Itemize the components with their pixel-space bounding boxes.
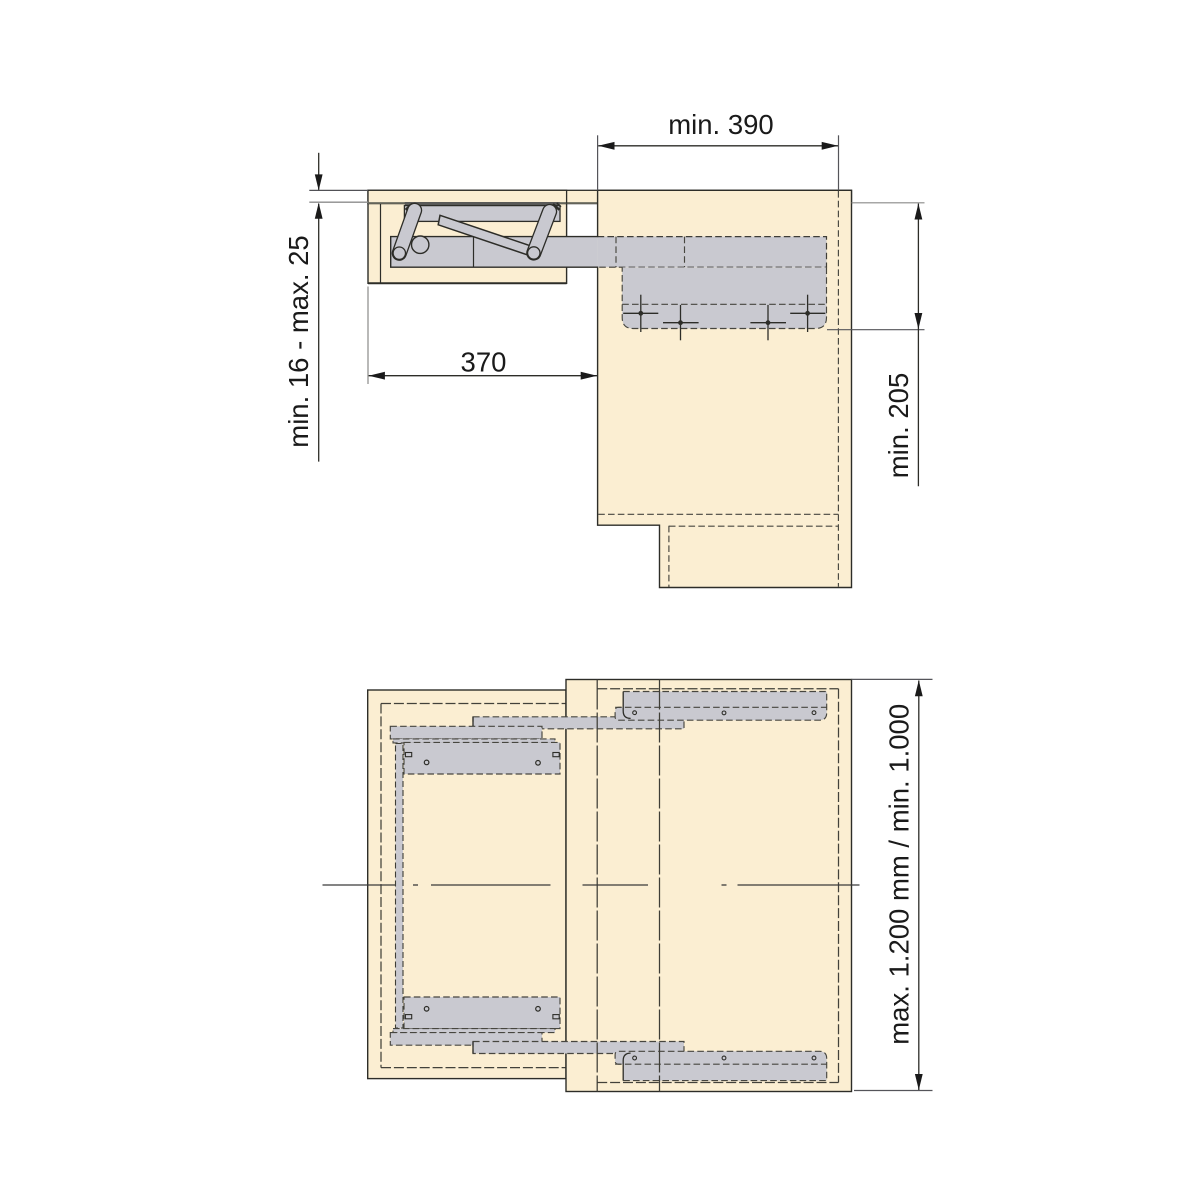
svg-text:min. 16 - max. 25: min. 16 - max. 25 — [283, 235, 314, 447]
svg-text:max. 1.200 mm / min. 1.000: max. 1.200 mm / min. 1.000 — [884, 704, 915, 1045]
svg-text:min. 390: min. 390 — [668, 109, 773, 140]
svg-text:min. 205: min. 205 — [883, 373, 914, 478]
svg-text:370: 370 — [461, 347, 507, 378]
